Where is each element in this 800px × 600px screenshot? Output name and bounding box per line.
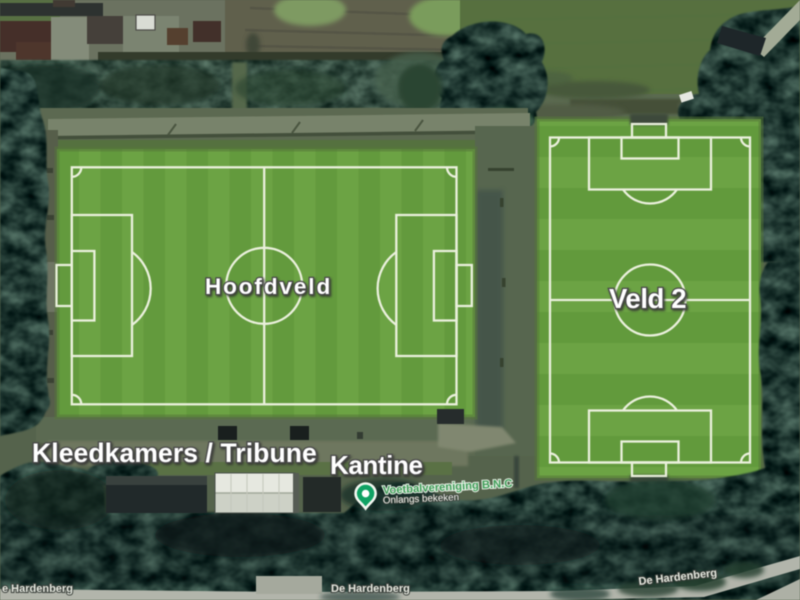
svg-text:Kantine: Kantine [330, 450, 423, 480]
svg-text:Hoofdveld: Hoofdveld [205, 274, 332, 299]
svg-text:Kleedkamers / Tribune: Kleedkamers / Tribune [32, 438, 317, 468]
svg-text:De Hardenberg: De Hardenberg [331, 583, 410, 595]
svg-text:e Hardenberg: e Hardenberg [2, 583, 73, 595]
svg-text:Veld 2: Veld 2 [609, 283, 686, 314]
